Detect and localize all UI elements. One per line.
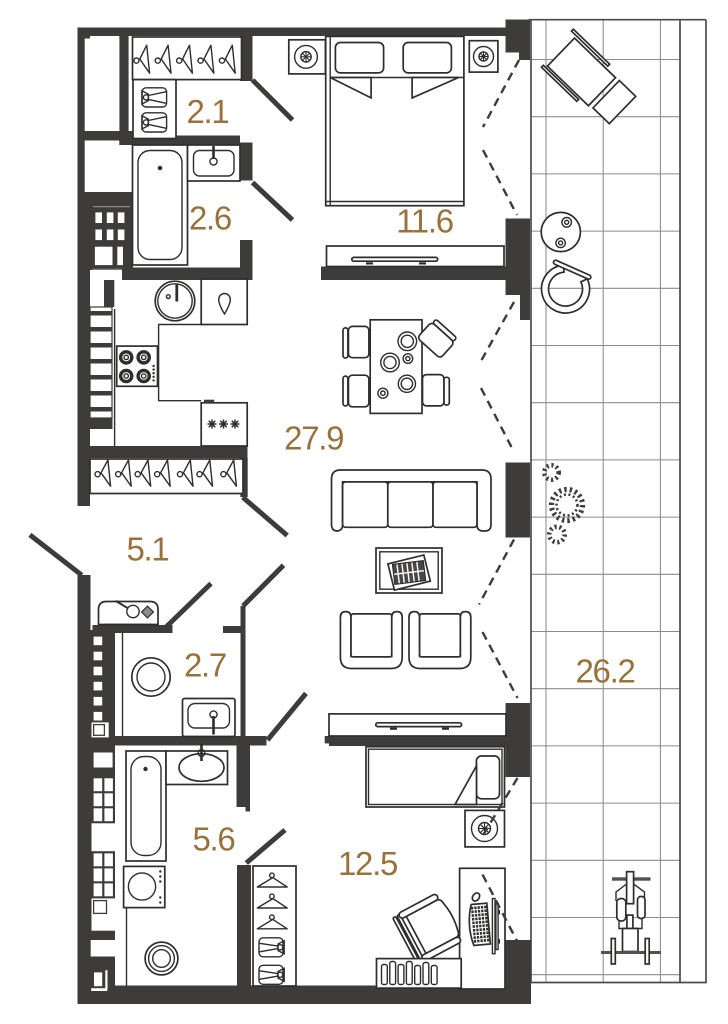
svg-text:2.7: 2.7: [184, 647, 226, 684]
svg-text:11.6: 11.6: [396, 202, 453, 239]
svg-text:27.9: 27.9: [284, 420, 343, 457]
svg-text:5.1: 5.1: [127, 531, 169, 568]
svg-text:5.6: 5.6: [193, 821, 235, 858]
svg-text:2.1: 2.1: [187, 93, 229, 130]
svg-text:12.5: 12.5: [338, 845, 397, 882]
svg-text:2.6: 2.6: [189, 200, 231, 237]
svg-text:26.2: 26.2: [575, 653, 634, 690]
